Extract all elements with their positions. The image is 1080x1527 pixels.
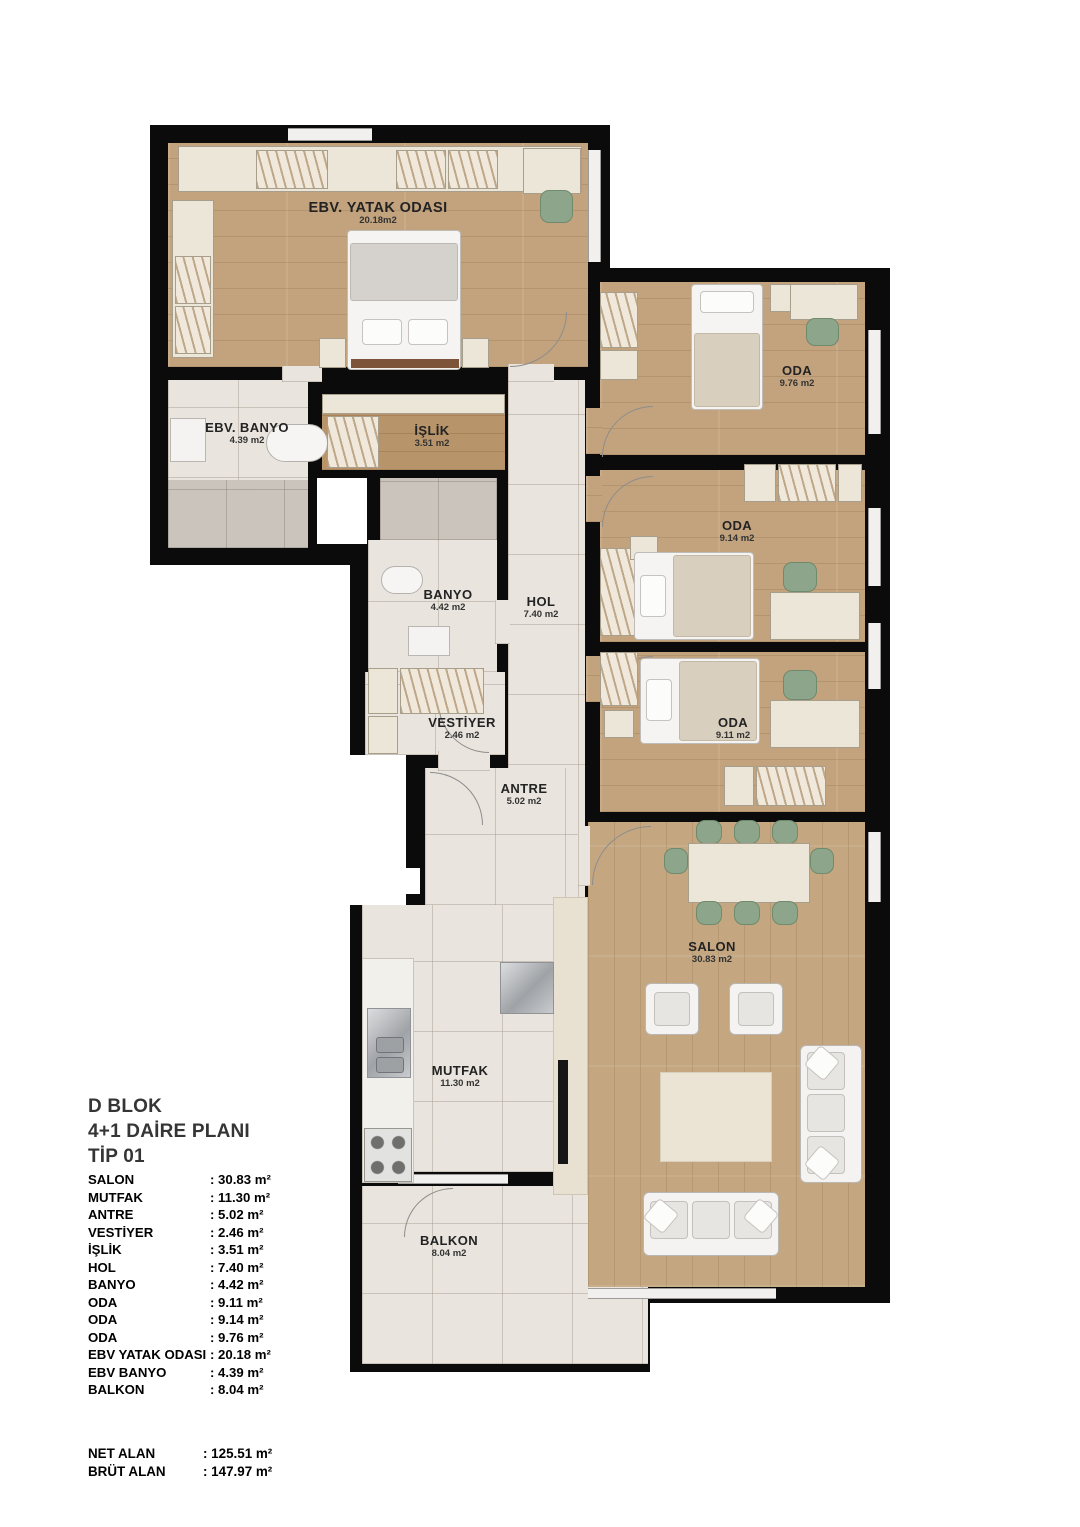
tv-unit [558, 1060, 568, 1164]
door-gap-bedroom-914 [586, 476, 602, 522]
armchair [645, 983, 699, 1035]
area-row-value: : 5.02 m² [210, 1207, 264, 1222]
window-bedroom-911 [868, 623, 881, 689]
desk-911 [770, 700, 860, 748]
total-row-name: BRÜT ALAN [88, 1464, 203, 1479]
room-name: ODA [691, 716, 775, 731]
area-row: SALON: 30.83 m² [88, 1172, 271, 1190]
area-row: ODA: 9.14 m² [88, 1312, 271, 1330]
area-row-value: : 4.42 m² [210, 1277, 264, 1292]
bed-pillow [408, 319, 448, 345]
wardrobe-hanger-section [600, 292, 638, 348]
room-area: 9.14 m2 [695, 534, 779, 545]
door-gap-master-bath [282, 366, 322, 382]
window-master-right [588, 150, 601, 262]
area-row-name: BANYO [88, 1277, 210, 1292]
room-name: ODA [755, 364, 839, 379]
room-label-bath: BANYO 4.42 m2 [408, 588, 488, 613]
area-row: EBV BANYO: 4.39 m² [88, 1365, 271, 1383]
room-label-kitchen: MUTFAK 11.30 m2 [400, 1064, 520, 1089]
area-table: SALON: 30.83 m² MUTFAK: 11.30 m² ANTRE: … [88, 1172, 271, 1400]
bed-pillow [646, 679, 672, 721]
area-row: ODA: 9.76 m² [88, 1330, 271, 1348]
room-area: 3.51 m2 [392, 439, 472, 450]
dining-chair [696, 820, 722, 844]
room-label-bedroom-911: ODA 9.11 m2 [691, 716, 775, 741]
floor-plan-sheet: EBV. YATAK ODASI 20.18m2 EBV. BANYO 4.39… [0, 0, 1080, 1527]
room-label-bedroom-976: ODA 9.76 m2 [755, 364, 839, 389]
area-row-name: HOL [88, 1260, 210, 1275]
area-row-value: : 30.83 m² [210, 1172, 271, 1187]
area-row-value: : 3.51 m² [210, 1242, 264, 1257]
floor-master-bath-shower [168, 480, 308, 548]
total-row: BRÜT ALAN: 147.97 m² [88, 1464, 272, 1482]
room-name: ODA [695, 519, 779, 534]
room-name: ANTRE [464, 782, 584, 797]
wardrobe-hanger-section [396, 150, 446, 189]
area-row-name: EBV BANYO [88, 1365, 210, 1380]
dressing-cabinet [368, 668, 398, 714]
room-label-dressing: VESTİYER 2.46 m2 [402, 716, 522, 741]
nightstand [462, 338, 489, 368]
dining-chair [772, 820, 798, 844]
area-row-value: : 9.14 m² [210, 1312, 264, 1327]
nightstand [604, 710, 634, 738]
area-row-name: SALON [88, 1172, 210, 1187]
sofa-cushion [807, 1094, 845, 1132]
armchair-cushion [654, 992, 690, 1026]
room-area: 4.42 m2 [408, 603, 488, 614]
bed-headboard [351, 359, 459, 368]
area-row-name: ODA [88, 1312, 210, 1327]
area-row-value: : 7.40 m² [210, 1260, 264, 1275]
dining-chair [810, 848, 834, 874]
armchair [729, 983, 783, 1035]
desk-master [523, 148, 581, 194]
room-name: İŞLİK [392, 424, 472, 439]
wardrobe-hanger-section [600, 548, 638, 636]
wardrobe-hanger-section [175, 256, 211, 304]
area-row-value: : 4.39 m² [210, 1365, 264, 1380]
wardrobe-cabinet [744, 464, 776, 502]
total-row: NET ALAN: 125.51 m² [88, 1446, 272, 1464]
area-row: MUTFAK: 11.30 m² [88, 1190, 271, 1208]
stove-cooktop [364, 1128, 412, 1182]
room-name: BALKON [389, 1234, 509, 1249]
room-area: 8.04 m2 [389, 1249, 509, 1260]
type-number: TİP 01 [88, 1144, 250, 1169]
window-living-right [868, 832, 881, 902]
armchair-cushion [738, 992, 774, 1026]
room-name: EBV. YATAK ODASI [298, 200, 458, 216]
room-name: BANYO [408, 588, 488, 603]
area-row-name: İŞLİK [88, 1242, 210, 1257]
area-row-name: ODA [88, 1295, 210, 1310]
room-label-bedroom-914: ODA 9.14 m2 [695, 519, 779, 544]
nightstand [319, 338, 346, 368]
room-area: 4.39 m2 [185, 436, 309, 447]
utility-cabinet [327, 416, 379, 468]
washbasin-bath [408, 626, 450, 656]
area-row-value: : 20.18 m² [210, 1347, 271, 1362]
room-area: 9.11 m2 [691, 731, 775, 742]
wardrobe-hanger-section [448, 150, 498, 189]
floor-bath-shower [380, 478, 497, 540]
chair-976 [806, 318, 839, 346]
area-rug [660, 1072, 772, 1162]
room-label-utility: İŞLİK 3.51 m2 [392, 424, 472, 449]
bed-pillow [640, 575, 666, 617]
total-row-name: NET ALAN [88, 1446, 203, 1461]
dining-chair [734, 820, 760, 844]
area-row-name: MUTFAK [88, 1190, 210, 1205]
wardrobe-cabinet [600, 350, 638, 380]
room-label-balcony: BALKON 8.04 m2 [389, 1234, 509, 1259]
area-row-name: VESTİYER [88, 1225, 210, 1240]
block-name: D BLOK [88, 1094, 250, 1119]
room-area: 5.02 m2 [464, 797, 584, 808]
door-gap-living [578, 826, 590, 886]
bed-pillow [700, 291, 754, 313]
wardrobe-hanger-section [256, 150, 328, 189]
area-row-value: : 11.30 m² [210, 1190, 270, 1205]
room-area: 11.30 m2 [400, 1079, 520, 1090]
room-area: 2.46 m2 [402, 731, 522, 742]
room-label-master-bath: EBV. BANYO 4.39 m2 [185, 421, 309, 446]
room-label-hall: HOL 7.40 m2 [506, 595, 576, 620]
sofa-cushion [692, 1201, 730, 1239]
area-row-value: : 2.46 m² [210, 1225, 264, 1240]
window-living-bottom [588, 1288, 776, 1299]
room-name: EBV. BANYO [185, 421, 309, 436]
area-row: İŞLİK: 3.51 m² [88, 1242, 271, 1260]
room-area: 20.18m2 [298, 216, 458, 227]
double-bed-master [347, 230, 461, 370]
plan-type: 4+1 DAİRE PLANI [88, 1119, 250, 1144]
room-label-master: EBV. YATAK ODASI 20.18m2 [298, 200, 458, 227]
area-row: ODA: 9.11 m² [88, 1295, 271, 1313]
balcony-door-band [398, 1174, 508, 1184]
chair-911 [783, 670, 817, 700]
room-name: MUTFAK [400, 1064, 520, 1079]
sofa-horizontal [643, 1192, 779, 1256]
room-area: 30.83 m2 [652, 955, 772, 966]
room-name: HOL [506, 595, 576, 610]
total-row-value: : 125.51 m² [203, 1446, 272, 1461]
single-bed-976 [691, 284, 763, 410]
area-row: ANTRE: 5.02 m² [88, 1207, 271, 1225]
room-area: 7.40 m2 [506, 610, 576, 621]
dining-chair [734, 901, 760, 925]
area-row: BANYO: 4.42 m² [88, 1277, 271, 1295]
plan-notch [317, 478, 367, 544]
wardrobe-hanger-section [756, 766, 826, 806]
bed-blanket [673, 555, 751, 637]
bed-blanket [694, 333, 760, 407]
wardrobe-cabinet [724, 766, 754, 806]
dining-table [688, 843, 810, 903]
area-row-value: : 9.11 m² [210, 1295, 263, 1310]
room-name: SALON [652, 940, 772, 955]
bed-pillow [362, 319, 402, 345]
dressing-hanger-rack [400, 668, 484, 714]
plan-title-block: D BLOK 4+1 DAİRE PLANI TİP 01 [88, 1094, 250, 1169]
bed-blanket [350, 243, 458, 301]
area-totals: NET ALAN: 125.51 m² BRÜT ALAN: 147.97 m² [88, 1446, 272, 1482]
door-gap-bedroom-976 [586, 408, 602, 454]
area-row-value: : 9.76 m² [210, 1330, 264, 1345]
area-row-name: ANTRE [88, 1207, 210, 1222]
area-row-value: : 8.04 m² [210, 1382, 264, 1397]
area-row-name: ODA [88, 1330, 210, 1345]
wardrobe-hanger-section [175, 306, 211, 354]
wardrobe-hanger-section [778, 464, 836, 502]
dining-chair [664, 848, 688, 874]
wardrobe-hanger-section [600, 652, 638, 706]
desk-914 [770, 592, 860, 640]
wardrobe-master-top [178, 146, 582, 192]
room-label-entry: ANTRE 5.02 m2 [464, 782, 584, 807]
chair-914 [783, 562, 817, 592]
desk-976 [790, 284, 858, 320]
refrigerator [500, 962, 554, 1014]
area-row: EBV YATAK ODASI: 20.18 m² [88, 1347, 271, 1365]
area-row: HOL: 7.40 m² [88, 1260, 271, 1278]
window-bedroom-914 [868, 508, 881, 586]
area-row-name: EBV YATAK ODASI [88, 1347, 210, 1362]
area-row: BALKON: 8.04 m² [88, 1382, 271, 1400]
dining-chair [696, 901, 722, 925]
total-row-value: : 147.97 m² [203, 1464, 272, 1479]
sink-basin [376, 1037, 404, 1053]
area-row: VESTİYER: 2.46 m² [88, 1225, 271, 1243]
window-bedroom-976 [868, 330, 881, 434]
room-label-living: SALON 30.83 m2 [652, 940, 772, 965]
chair-master [540, 190, 573, 223]
dressing-cabinet [368, 716, 398, 754]
window-master-top [288, 128, 372, 141]
utility-cabinet-strip [322, 394, 505, 414]
room-area: 9.76 m2 [755, 379, 839, 390]
plan-notch [370, 868, 420, 894]
door-gap-dressing [438, 751, 490, 771]
dining-chair [772, 901, 798, 925]
wardrobe-cabinet [838, 464, 862, 502]
single-bed-914 [634, 552, 754, 640]
sofa-vertical [800, 1045, 862, 1183]
room-name: VESTİYER [402, 716, 522, 731]
area-row-name: BALKON [88, 1382, 210, 1397]
